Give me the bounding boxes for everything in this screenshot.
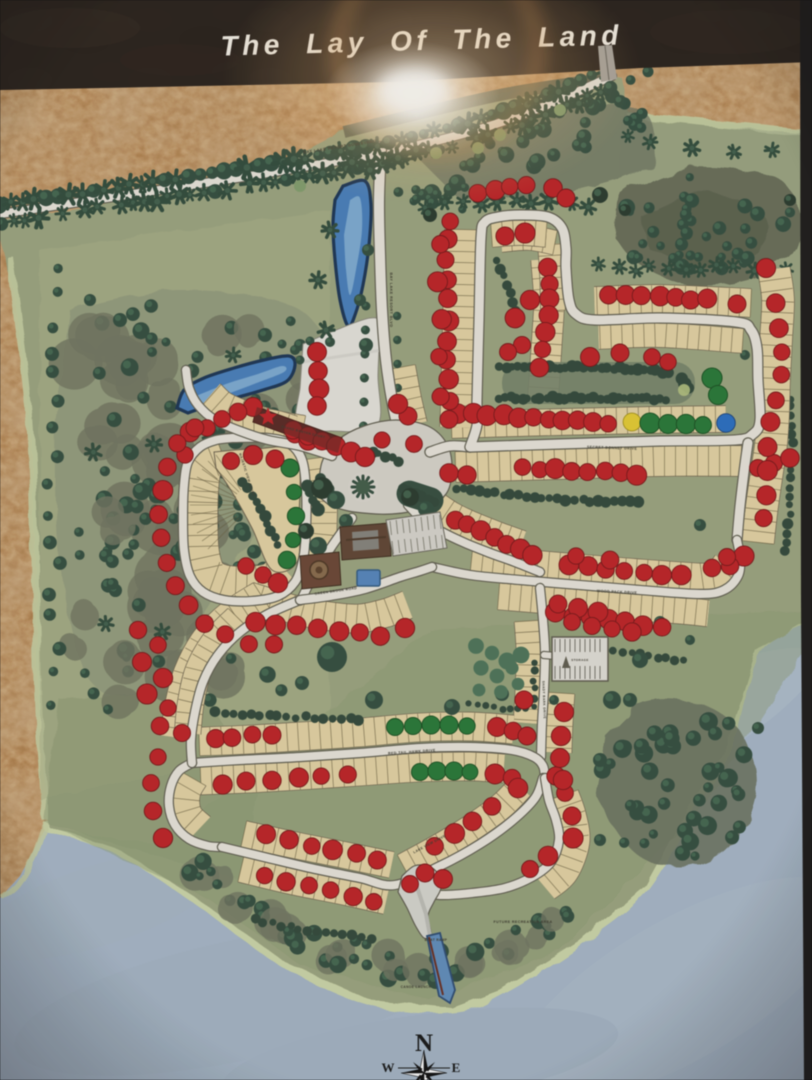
svg-text:W: W	[382, 1060, 395, 1075]
svg-text:E: E	[452, 1060, 461, 1075]
